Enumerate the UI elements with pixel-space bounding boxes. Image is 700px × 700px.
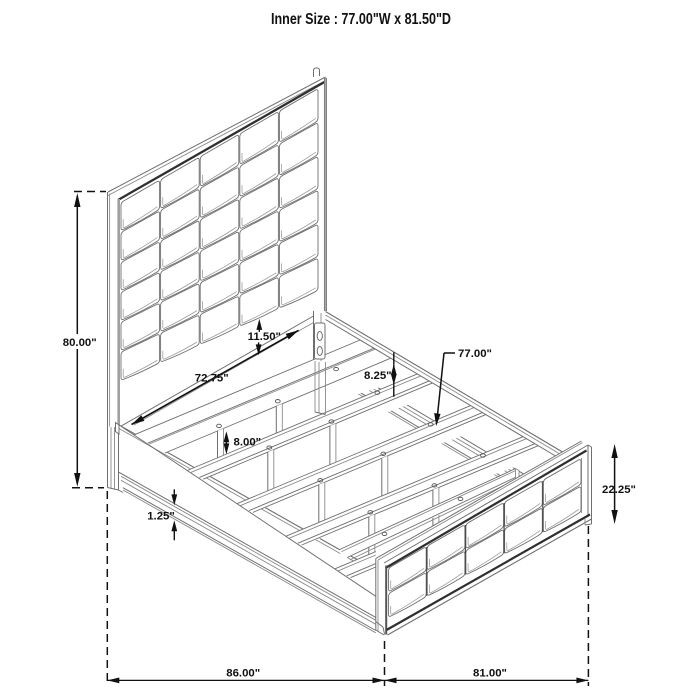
- svg-text:77.00": 77.00": [458, 348, 492, 360]
- svg-text:Inner Size : 77.00"W x 81.50"D: Inner Size : 77.00"W x 81.50"D: [271, 11, 451, 28]
- svg-text:81.00": 81.00": [473, 668, 507, 680]
- svg-text:72.75": 72.75": [195, 373, 229, 385]
- svg-text:86.00": 86.00": [226, 668, 260, 680]
- svg-text:1.25": 1.25": [147, 511, 175, 523]
- svg-text:80.00": 80.00": [63, 337, 97, 349]
- svg-text:8.00": 8.00": [234, 436, 262, 448]
- svg-text:11.50": 11.50": [248, 331, 281, 343]
- svg-text:8.25": 8.25": [364, 370, 392, 382]
- svg-text:22.25": 22.25": [602, 484, 636, 496]
